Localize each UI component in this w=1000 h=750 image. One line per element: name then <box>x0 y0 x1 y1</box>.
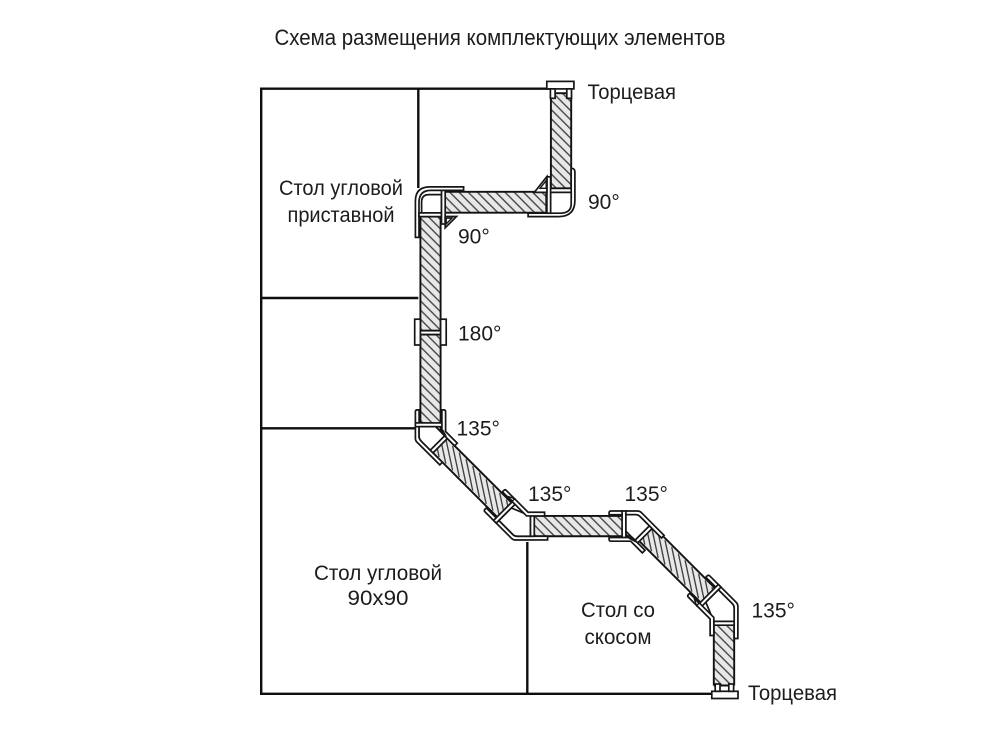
svg-text:135°: 135° <box>752 600 795 623</box>
svg-text:Стол со: Стол со <box>581 599 655 622</box>
svg-text:135°: 135° <box>457 418 500 441</box>
svg-text:90х90: 90х90 <box>348 587 409 610</box>
svg-text:135°: 135° <box>625 483 668 506</box>
svg-text:Торцевая: Торцевая <box>748 682 837 705</box>
svg-text:90°: 90° <box>458 226 490 249</box>
svg-text:Схема размещения комплектующих: Схема размещения комплектующих элементов <box>275 25 726 50</box>
svg-text:135°: 135° <box>528 483 571 506</box>
svg-text:Торцевая: Торцевая <box>588 81 677 104</box>
svg-text:приставной: приставной <box>288 204 395 227</box>
svg-text:Стол угловой: Стол угловой <box>279 177 403 200</box>
svg-text:90°: 90° <box>588 191 620 214</box>
svg-text:скосом: скосом <box>585 626 652 649</box>
svg-text:Стол угловой: Стол угловой <box>314 562 442 585</box>
svg-text:180°: 180° <box>458 322 501 345</box>
